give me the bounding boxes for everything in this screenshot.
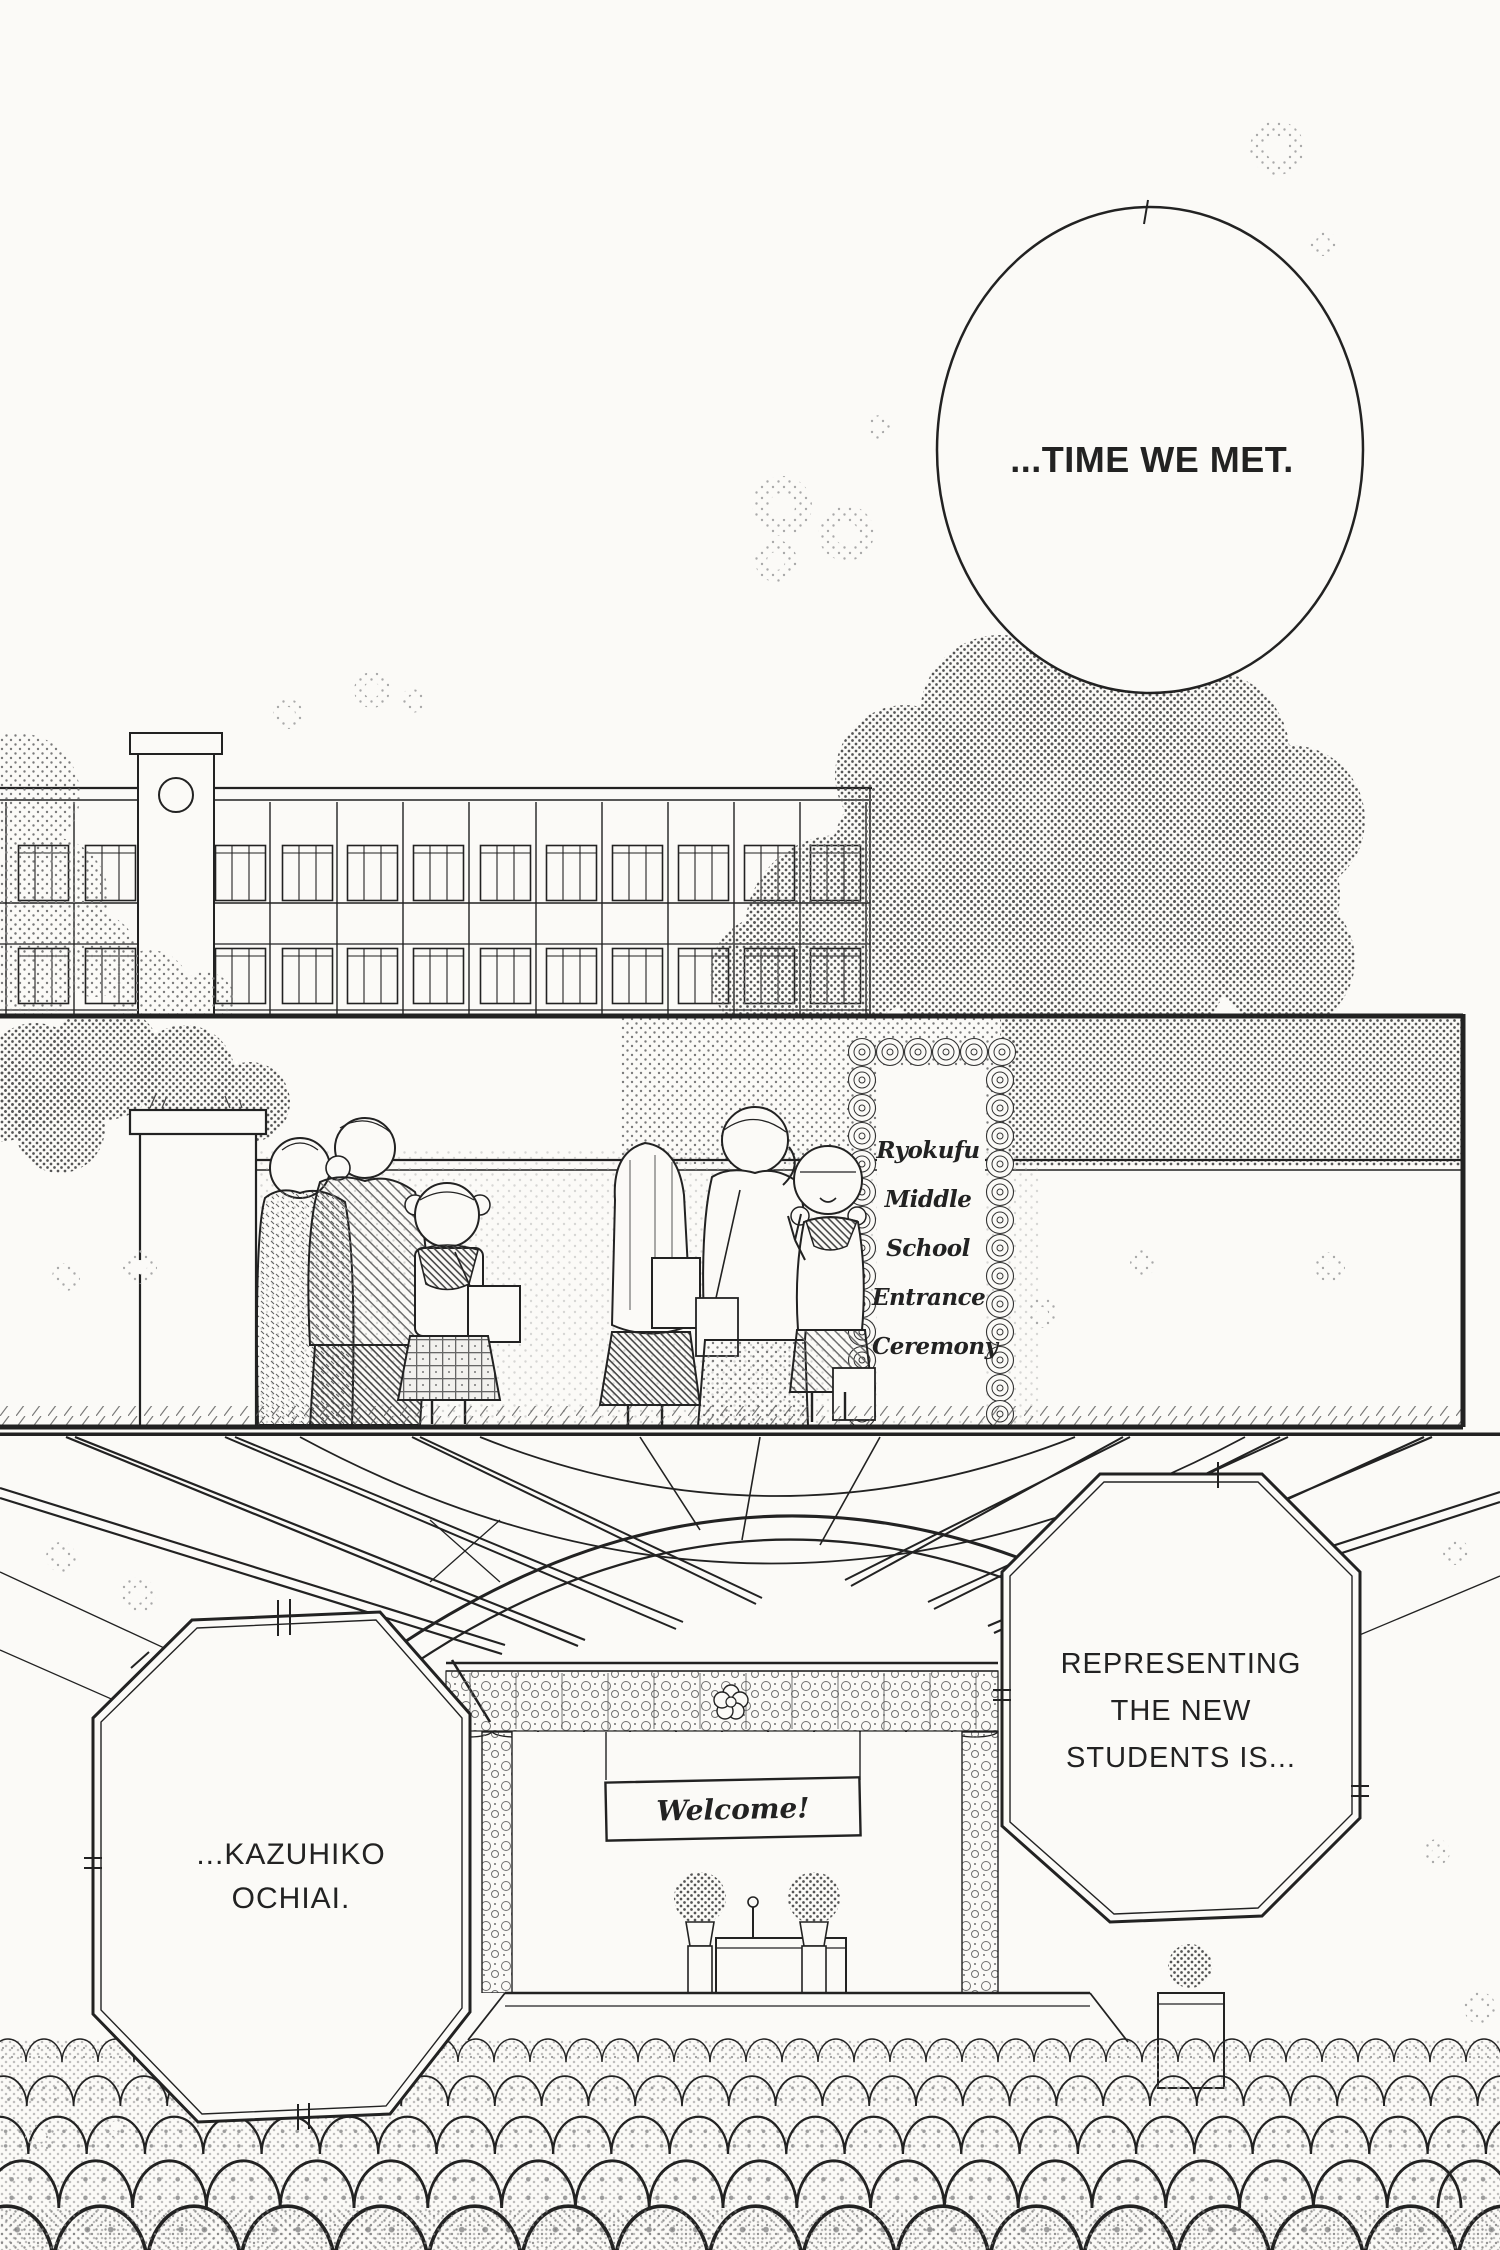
kazuhiko-line-1: ...KAZUHIKO bbox=[93, 1833, 489, 1877]
clock-face bbox=[159, 778, 193, 812]
sign-line-5: Ceremony bbox=[872, 1322, 984, 1371]
sign-line-1: Ryokufu bbox=[872, 1126, 984, 1175]
manga-page: ...TIME WE MET. Ryokufu Middle School En… bbox=[0, 0, 1500, 2250]
kazuhiko-bubble-text: ...KAZUHIKO OCHIAI. bbox=[93, 1833, 489, 1921]
figure-peace-girl bbox=[788, 1146, 875, 1422]
representing-line-2: THE NEW bbox=[1002, 1688, 1360, 1735]
representing-line-1: REPRESENTING bbox=[1002, 1641, 1360, 1688]
panel-entrance-gate bbox=[0, 1004, 1463, 1428]
sign-line-3: School bbox=[872, 1224, 984, 1273]
welcome-banner-text: Welcome! bbox=[605, 1777, 860, 1840]
sign-line-4: Entrance bbox=[872, 1273, 984, 1322]
kazuhiko-line-2: OCHIAI. bbox=[93, 1877, 489, 1921]
time-bubble-text: ...TIME WE MET. bbox=[940, 250, 1364, 650]
stage-curtain-right bbox=[962, 1732, 998, 1993]
representing-bubble-text: REPRESENTING THE NEW STUDENTS IS... bbox=[1002, 1641, 1360, 1782]
sign-line-2: Middle bbox=[872, 1175, 984, 1224]
entrance-sign-text: Ryokufu Middle School Entrance Ceremony bbox=[872, 1126, 984, 1371]
representing-line-3: STUDENTS IS... bbox=[1002, 1735, 1360, 1782]
